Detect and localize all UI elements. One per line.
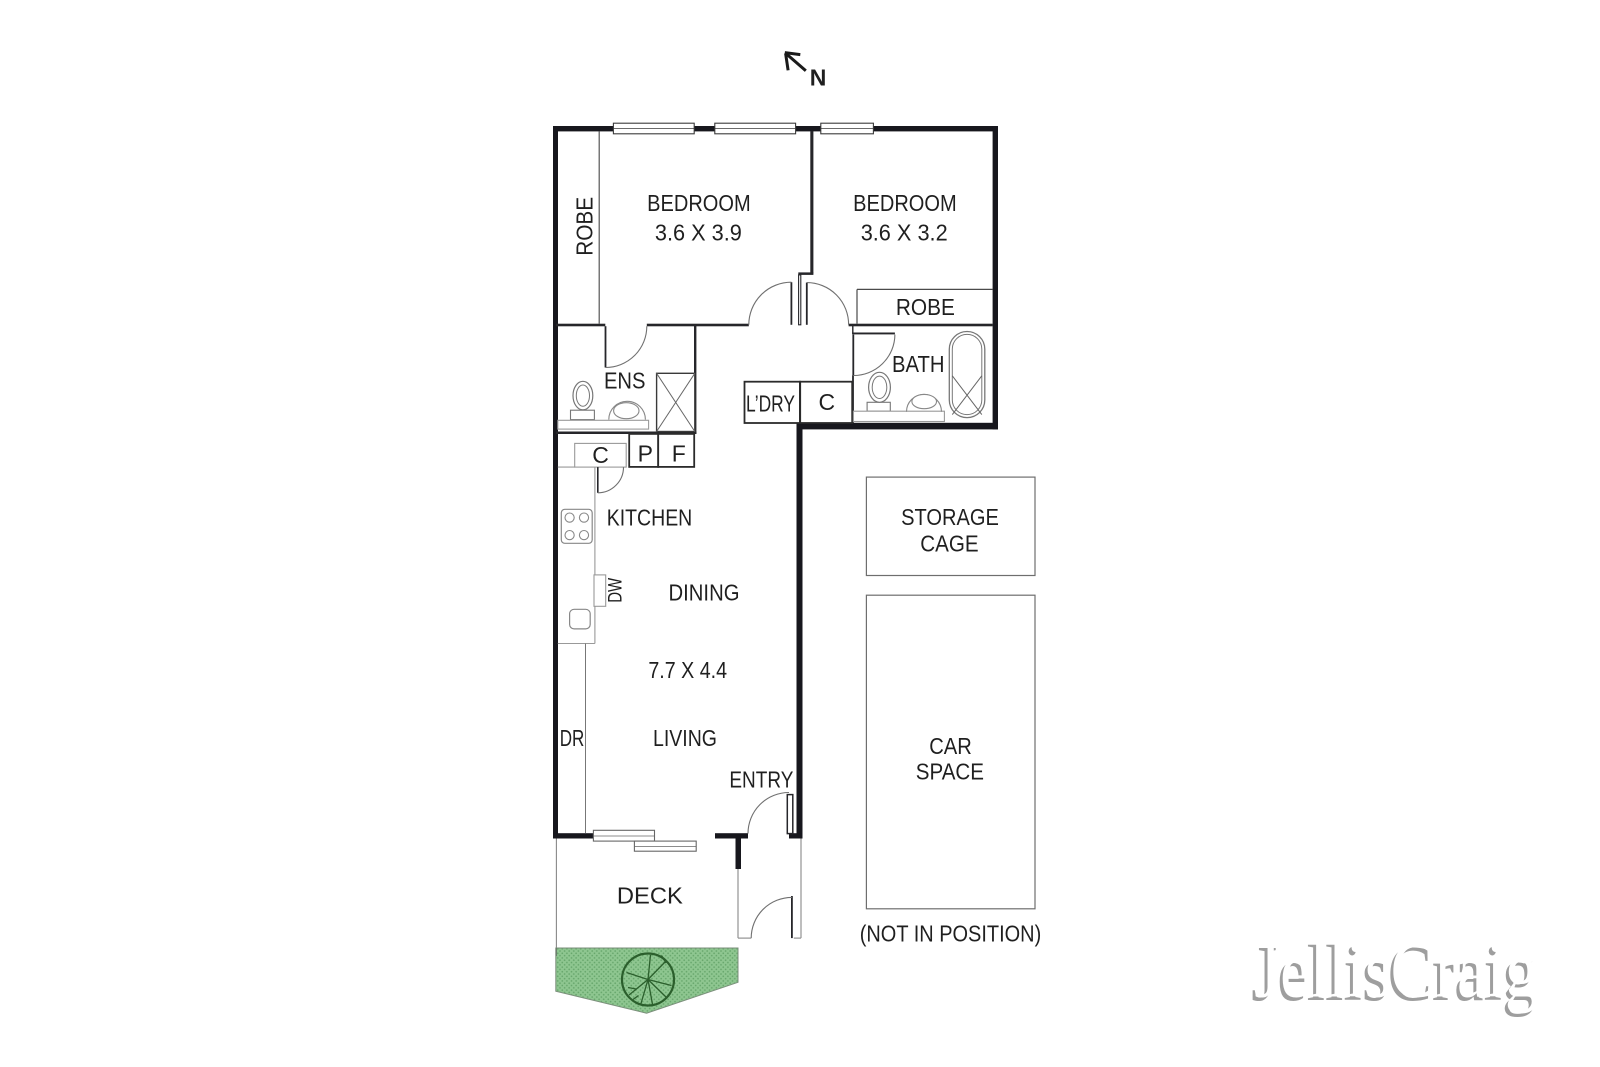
svg-text:BATH: BATH bbox=[892, 351, 945, 377]
svg-text:ENTRY: ENTRY bbox=[729, 766, 793, 792]
svg-text:STORAGE: STORAGE bbox=[901, 504, 999, 530]
svg-text:BEDROOM: BEDROOM bbox=[853, 190, 957, 216]
svg-text:CAGE: CAGE bbox=[920, 530, 978, 556]
svg-text:P: P bbox=[638, 441, 653, 467]
svg-text:DR: DR bbox=[560, 725, 585, 751]
svg-text:DECK: DECK bbox=[617, 882, 684, 908]
svg-text:F: F bbox=[672, 441, 686, 467]
svg-text:ENS: ENS bbox=[604, 367, 646, 393]
svg-text:DW: DW bbox=[606, 578, 627, 603]
svg-text:3.6 X 3.9: 3.6 X 3.9 bbox=[655, 220, 742, 246]
svg-text:SPACE: SPACE bbox=[916, 759, 984, 785]
svg-text:DINING: DINING bbox=[669, 580, 740, 606]
svg-text:BEDROOM: BEDROOM bbox=[647, 190, 751, 216]
svg-text:L’DRY: L’DRY bbox=[746, 391, 795, 417]
svg-text:C: C bbox=[818, 389, 835, 415]
svg-text:LIVING: LIVING bbox=[653, 725, 717, 751]
svg-text:JellisCraig: JellisCraig bbox=[1254, 926, 1538, 1014]
svg-text:N: N bbox=[810, 65, 827, 91]
svg-text:CAR: CAR bbox=[929, 733, 972, 759]
svg-text:ROBE: ROBE bbox=[571, 197, 597, 256]
svg-text:(NOT IN POSITION): (NOT IN POSITION) bbox=[860, 921, 1042, 947]
svg-text:C: C bbox=[592, 442, 609, 468]
svg-text:ROBE: ROBE bbox=[896, 294, 955, 320]
svg-text:3.6 X 3.2: 3.6 X 3.2 bbox=[861, 220, 948, 246]
svg-text:KITCHEN: KITCHEN bbox=[607, 504, 693, 530]
svg-text:7.7 X 4.4: 7.7 X 4.4 bbox=[648, 657, 727, 683]
